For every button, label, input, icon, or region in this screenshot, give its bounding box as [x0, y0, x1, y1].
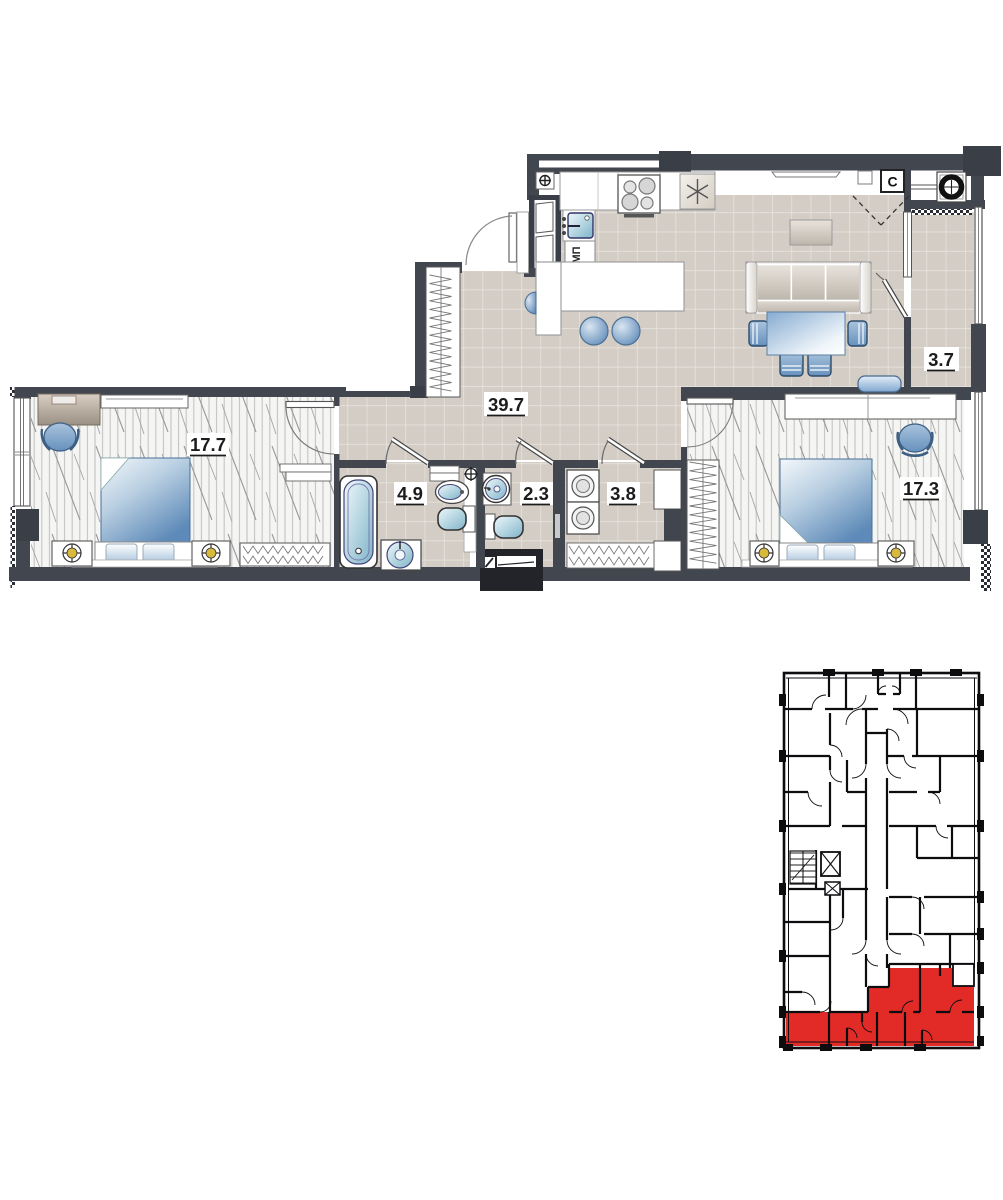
svg-text:17.3: 17.3: [903, 478, 939, 499]
svg-text:3.8: 3.8: [610, 483, 636, 504]
svg-text:C: C: [887, 174, 897, 190]
svg-text:МП: МП: [571, 246, 583, 263]
svg-text:39.7: 39.7: [488, 394, 524, 415]
svg-text:2.3: 2.3: [523, 483, 549, 504]
svg-text:17.7: 17.7: [190, 434, 226, 455]
svg-text:3.7: 3.7: [928, 349, 954, 370]
svg-text:4.9: 4.9: [397, 483, 423, 504]
